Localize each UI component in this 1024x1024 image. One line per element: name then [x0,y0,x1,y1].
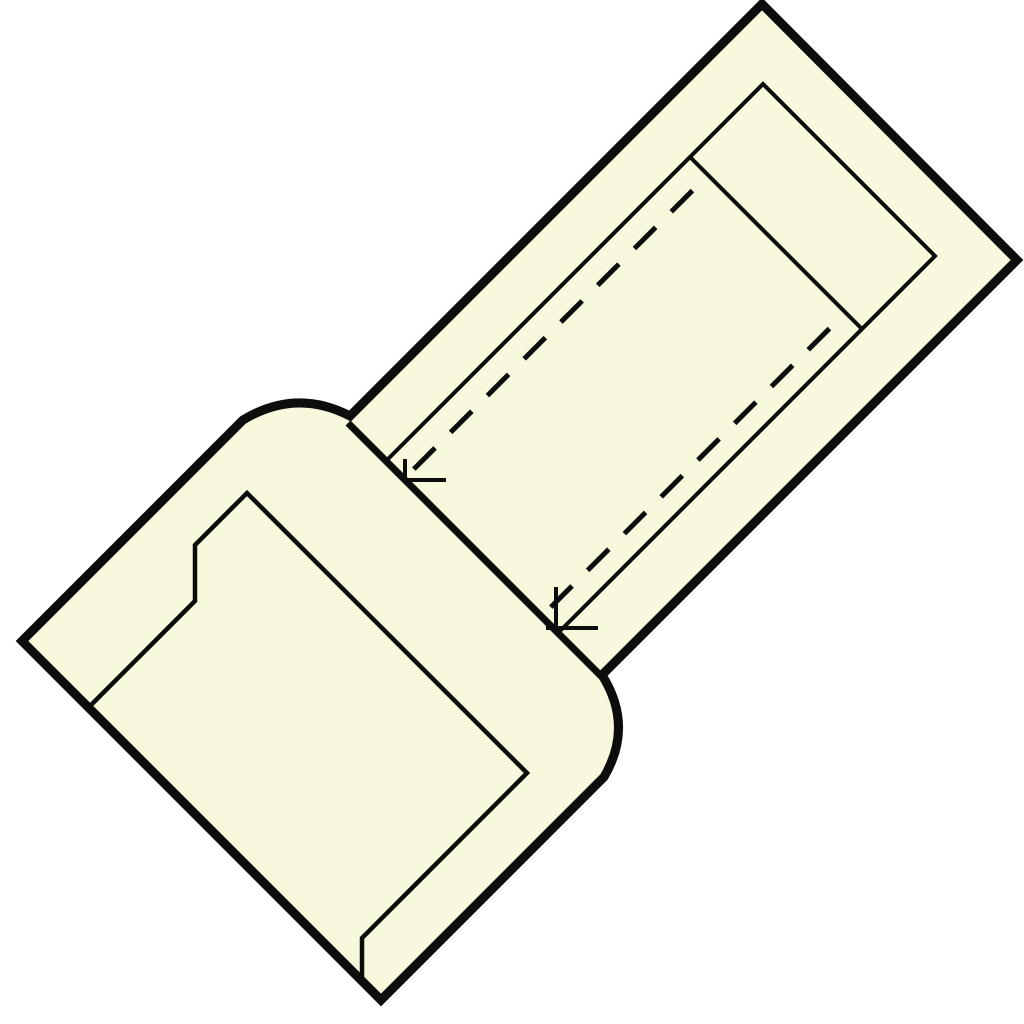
connector-body-outline [22,4,1017,1000]
drawing-canvas [0,0,1024,1024]
connector-technical-drawing [0,0,1024,1024]
